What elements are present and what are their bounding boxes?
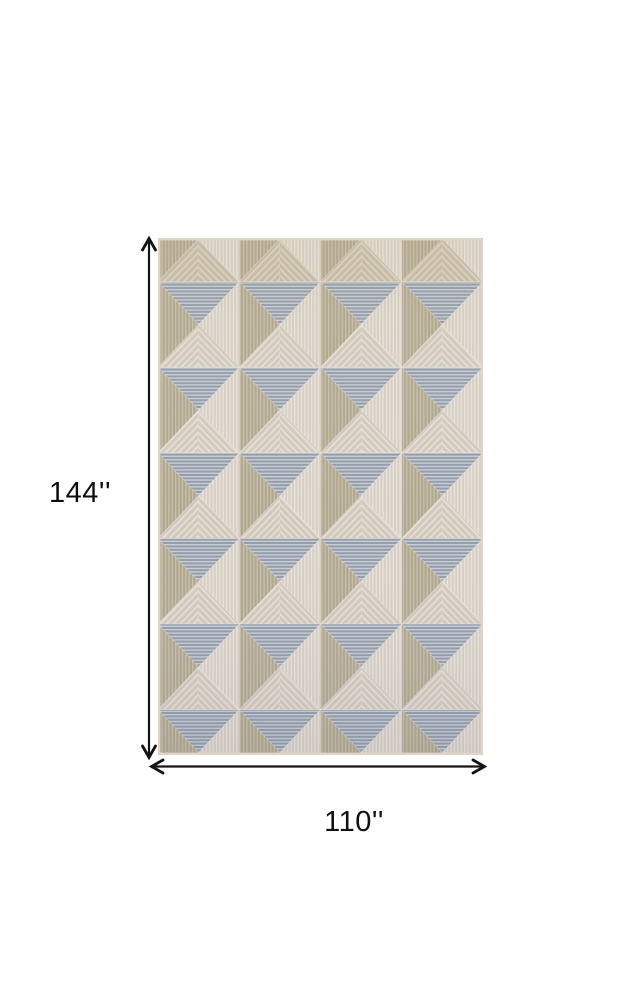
rug-image: [158, 238, 483, 755]
rug-pattern: [158, 238, 483, 755]
product-dimension-diagram: 144'' 110'': [0, 0, 642, 1000]
width-dimension-arrow: [150, 758, 486, 775]
height-label: 144'': [24, 478, 136, 508]
height-dimension-arrow: [141, 237, 157, 759]
width-label: 110'': [298, 807, 410, 837]
